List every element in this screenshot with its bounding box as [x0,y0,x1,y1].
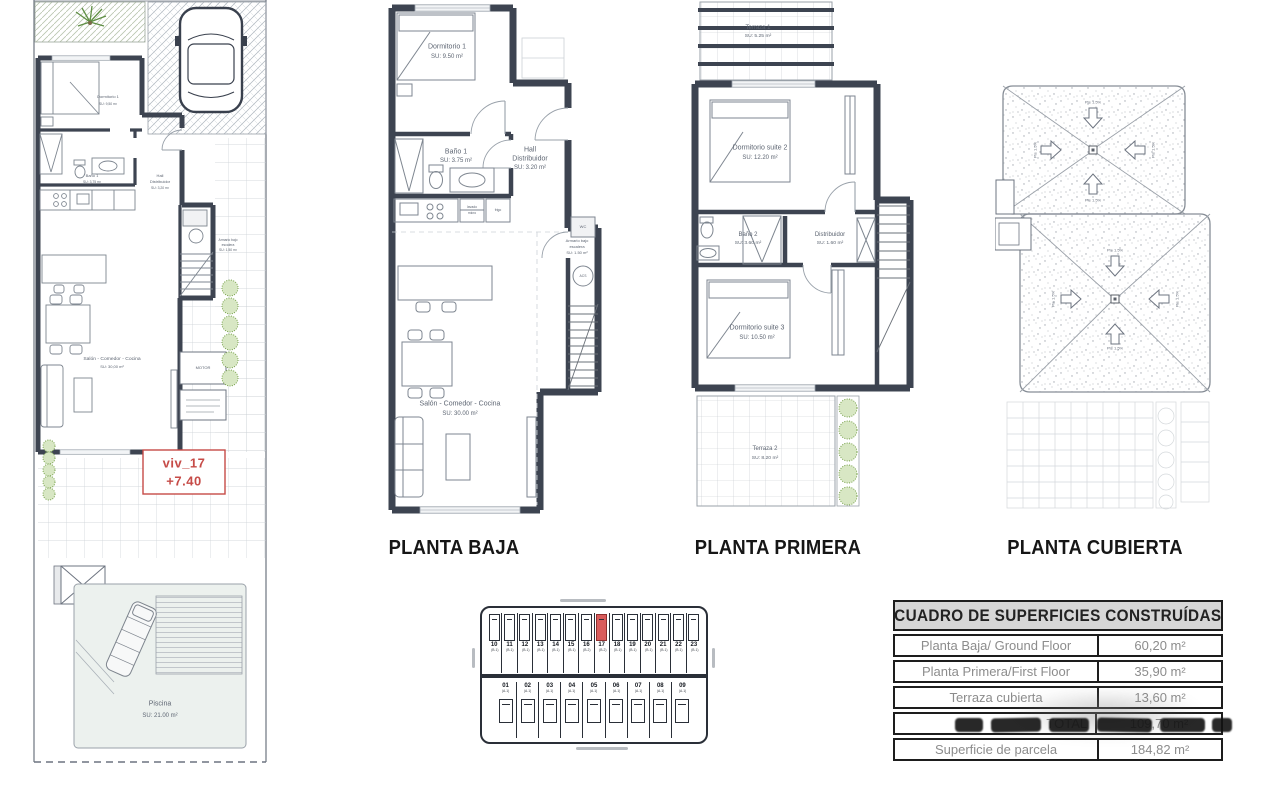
room-label: Baño 1 [86,174,99,178]
keyplan-unit-shape [673,614,684,641]
room-label: Distribuidor [815,232,845,238]
keyplan-unit-17: 17(B.2) [595,613,610,673]
row-label: Superficie de parcela [895,740,1099,759]
room-label: Distribuidor [150,180,170,184]
keyplan-unit-type: (A.1) [567,689,576,693]
title-planta-cubierta: PLANTA CUBIERTA [1007,537,1183,560]
room-label: Distribuidor [512,156,547,163]
row-value: 60,20 m² [1099,636,1221,655]
keyplan-unit-shape [543,699,557,723]
keyplan-unit-shape [653,699,667,723]
keyplan-unit-shape [642,614,653,641]
table-row: Planta Baja/ Ground Floor 60,20 m² [893,634,1223,657]
unit-level-label: +7.40 [166,475,201,488]
room-label: Salón - Comedor - Cocina [420,401,501,408]
keyplan-unit-20: 20(B.1) [641,613,656,673]
room-label: Dormitorio suite 3 [730,325,785,332]
keyplan-unit-shape [688,614,699,641]
room-area: SU: 30.00 m² [442,411,477,417]
keyplan-unit-shape [521,699,535,723]
sofa-icon [41,365,63,427]
keyplan-unit-16: 16(B.2) [579,613,594,673]
appliance-label: micro [468,211,476,214]
keyplan-unit-type: (B.1) [675,648,681,652]
keyplan-unit-shape [519,614,530,641]
room-label: Baño 2 [738,232,757,238]
keyplan-unit-type: (A.1) [545,689,554,693]
site-key-plan: 10(B.1)11(B.1)12(B.1)13(B.1)14(B.1)15(B.… [480,606,708,744]
keyplan-unit-01: 01(A.1) [495,682,517,738]
room-label: Dormitorio 1 [428,44,466,51]
keyplan-unit-shape [675,699,689,723]
keyplan-unit-09: 09(A.1) [672,682,693,738]
table-row-total: TOTAL 109,70 m² [893,712,1223,735]
bed-icon [41,62,99,114]
room-label: Hall [524,147,536,154]
keyplan-highlight-shape [596,614,607,641]
keyplan-unit-shape [581,614,592,641]
keyplan-unit-type: (A.1) [612,689,621,693]
keyplan-unit-11: 11(B.1) [502,613,517,673]
table-row: Superficie de parcela 184,82 m² [893,738,1223,761]
keyplan-unit-shape [612,614,623,641]
car-top-view-icon [175,8,247,112]
keyplan-unit-type: (B.1) [660,648,666,652]
keyplan-unit-23: 23(B.1) [687,613,701,673]
appliance-label: frigo [495,208,502,211]
row-label: Planta Primera/First Floor [895,662,1099,681]
keyplan-unit-type: (A.1) [590,689,599,693]
room-area: SU: 30,00 m² [100,365,124,369]
keyplan-top-row: 10(B.1)11(B.1)12(B.1)13(B.1)14(B.1)15(B.… [487,613,701,673]
room-label: Baño 1 [445,149,467,156]
table-row: Terraza cubierta 13,60 m² [893,686,1223,709]
surfaces-table: CUADRO DE SUPERFICIES CONSTRUÍDAS Planta… [893,600,1223,764]
keyplan-unit-18: 18(B.1) [610,613,625,673]
keyplan-unit-type: (B.1) [629,648,635,652]
row-value: 109,70 m² [1097,714,1221,733]
slope-label: Pte 1.5% [1107,248,1123,253]
slope-label: Pte 1.5% [1107,346,1123,351]
keyplan-unit-07: 07(A.1) [628,682,650,738]
appliance-label: lavado [467,205,477,208]
keyplan-unit-shape [489,614,500,641]
keyplan-unit-type: (A.1) [501,689,510,693]
keyplan-unit-shape [535,614,546,641]
keyplan-unit-13: 13(B.1) [533,613,548,673]
room-label: Dormitorio suite 2 [733,145,788,152]
keyplan-unit-02: 02(A.1) [517,682,539,738]
sofa-icon [395,417,423,497]
room-area: SU: 21.00 m² [142,713,177,719]
keyplan-unit-type: (B.1) [553,648,559,652]
keyplan-unit-shape [504,614,515,641]
keyplan-unit-08: 08(A.1) [650,682,672,738]
room-area: SU: 12.20 m² [742,155,777,161]
room-area: SU: 1,50 m² [219,248,237,251]
room-label: escalera [569,245,584,249]
room-area: SU: 5.25 m² [745,34,771,39]
keyplan-unit-shape [658,614,669,641]
slope-label: Pte 1.5% [1151,142,1156,158]
room-label: Dormitorio 1 [97,95,119,99]
keyplan-unit-shape [631,699,645,723]
keyplan-unit-shape [499,699,513,723]
surfaces-table-title: CUADRO DE SUPERFICIES CONSTRUÍDAS [894,606,1221,626]
room-label: Hall [157,174,164,178]
keyplan-unit-type: (A.1) [523,689,532,693]
keyplan-unit-type: (B.1) [507,648,513,652]
keyplan-unit-06: 06(A.1) [606,682,628,738]
room-area: SU: 3.20 m² [514,165,546,171]
wc-label: WC [580,225,587,229]
row-label: TOTAL [895,714,1097,733]
slope-label: Pte 1.5% [1085,198,1101,203]
motor-label: MOTOR [196,366,211,370]
table-row: Planta Primera/First Floor 35,90 m² [893,660,1223,683]
keyplan-unit-15: 15(B.1) [564,613,579,673]
keyplan-unit-14: 14(B.1) [548,613,563,673]
keyplan-unit-type: (B.2) [583,648,589,652]
plan-sheet: PLANTA BAJA PLANTA PRIMERA PLANTA CUBIER… [0,0,1280,800]
planta-baja-drawing [370,0,620,525]
slope-label: Pte 1.5% [1051,291,1056,307]
row-value: 184,82 m² [1099,740,1221,759]
room-label: Terraza 2 [752,446,777,452]
keyplan-unit-type: (B.2) [599,648,605,652]
keyplan-unit-type: (A.1) [678,689,687,693]
room-area: SU: 3,75 m² [83,180,101,183]
keyplan-unit-type: (B.1) [522,648,528,652]
room-label: Armario bajo [566,239,589,243]
planter-plants-icon [839,399,857,505]
row-label: Planta Baja/ Ground Floor [895,636,1099,655]
room-label: Terraza 1 [745,25,770,31]
keyplan-unit-type: (A.1) [634,689,643,693]
keyplan-unit-shape [587,699,601,723]
keyplan-unit-shape [565,699,579,723]
keyplan-bottom-row: 01(A.1)02(A.1)03(A.1)04(A.1)05(A.1)06(A.… [495,682,693,738]
site-plan-drawing [30,0,270,768]
room-area: SU: 9.50 m² [431,54,463,60]
room-area: SU: 1.50 m² [566,251,587,255]
title-planta-baja: PLANTA BAJA [389,537,520,560]
planta-cubierta-drawing [995,82,1225,522]
slope-label: Pte 1.5% [1175,291,1180,307]
decking [156,596,242,674]
room-area: SU: 3.60 m² [735,241,761,246]
row-value: 13,60 m² [1099,688,1221,707]
room-label: Salón - Comedor - Cocina [83,357,140,362]
keyplan-unit-22: 22(B.1) [671,613,686,673]
acs-label: ACS [580,274,587,277]
room-area: SU: 3,20 m² [151,186,169,189]
room-area: SU: 1.60 m² [817,241,843,246]
surfaces-table-header: CUADRO DE SUPERFICIES CONSTRUÍDAS [893,600,1223,631]
room-label: Piscina [149,701,172,708]
row-label: Terraza cubierta [895,688,1099,707]
keyplan-unit-shape [565,614,576,641]
keyplan-unit-05: 05(A.1) [583,682,605,738]
room-area: SU: 9,50 m² [99,102,117,105]
planta-primera-drawing [685,0,920,520]
keyplan-unit-type: (B.1) [614,648,620,652]
keyplan-unit-shape [550,614,561,641]
unit-ref-label: viv_17 [163,457,206,470]
keyplan-unit-type: (B.1) [568,648,574,652]
keyplan-unit-type: (B.1) [537,648,543,652]
slope-label: Pte 1.5% [1085,100,1101,105]
keyplan-unit-shape [627,614,638,641]
slope-label: Pte 1.5% [1033,142,1038,158]
keyplan-unit-21: 21(B.1) [656,613,671,673]
keyplan-unit-type: (B.1) [645,648,651,652]
title-planta-primera: PLANTA PRIMERA [695,537,861,560]
keyplan-unit-type: (B.1) [691,648,697,652]
keyplan-unit-03: 03(A.1) [539,682,561,738]
keyplan-unit-type: (B.1) [491,648,497,652]
keyplan-unit-12: 12(B.1) [518,613,533,673]
keyplan-divider [482,674,706,678]
keyplan-unit-19: 19(B.1) [625,613,640,673]
room-area: SU: 10.50 m² [739,335,774,341]
bed-icon [710,100,790,182]
room-area: SU: 3.75 m² [440,158,472,164]
terraza1-pergola [698,2,834,80]
room-area: SU: 8.20 m² [752,456,778,461]
row-value: 35,90 m² [1099,662,1221,681]
keyplan-unit-10: 10(B.1) [487,613,502,673]
bed-icon [707,280,790,358]
keyplan-unit-04: 04(A.1) [561,682,583,738]
room-label: escalera [222,243,235,246]
room-label: Armario bajo [218,238,237,241]
keyplan-unit-shape [609,699,623,723]
keyplan-unit-type: (A.1) [656,689,665,693]
